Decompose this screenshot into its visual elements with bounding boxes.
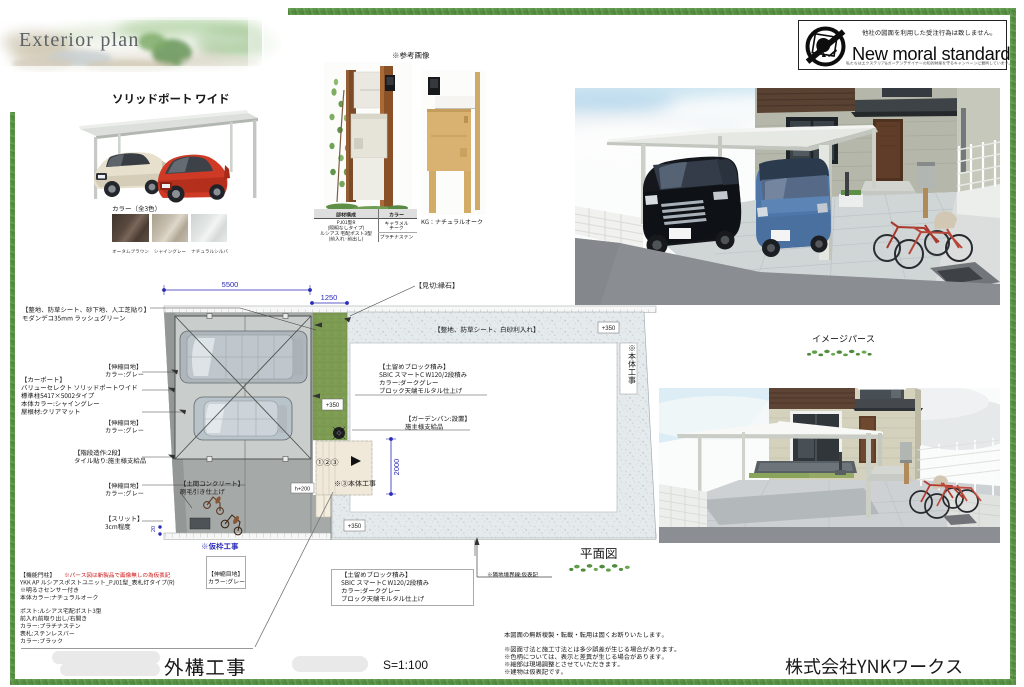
- svg-text:+350: +350: [602, 326, 616, 332]
- svg-text:1250: 1250: [321, 293, 338, 302]
- svg-text:5500: 5500: [222, 280, 239, 289]
- svg-text:2000: 2000: [392, 459, 401, 476]
- svg-text:+350: +350: [326, 403, 340, 409]
- svg-text:20: 20: [151, 526, 157, 532]
